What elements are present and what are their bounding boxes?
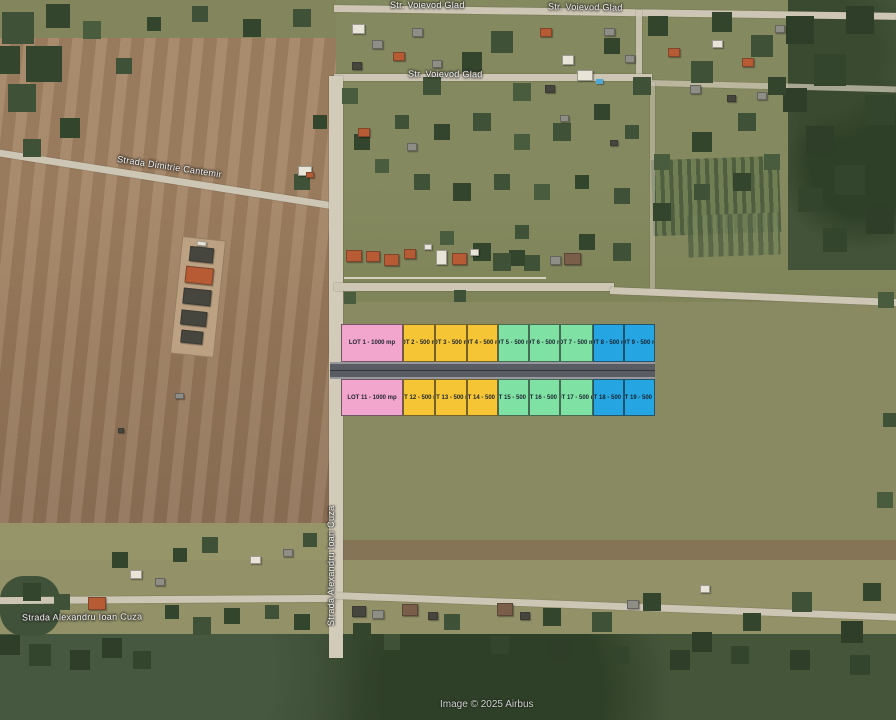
lot-9: LOT 9 - 500 mp [624,324,655,362]
lot-15: LOT 15 - 500 mp [498,379,529,416]
house [497,603,513,616]
road-middle [334,283,614,291]
farm-building [196,241,206,247]
house [540,28,552,37]
imagery-attribution: Image © 2025 Airbus [440,699,534,710]
house [352,62,362,70]
barn [182,287,212,306]
house [470,249,479,256]
house [712,40,723,48]
house [402,604,418,616]
house [562,55,574,65]
house [393,52,405,61]
lot-17: LOT 17 - 500 mp [560,379,593,416]
lot-row-2: LOT 11 - 1000 mp LOT 12 - 500 mp LOT 13 … [341,379,655,416]
house [775,25,785,33]
house [550,256,561,265]
road-voievod-glad-2 [334,74,652,81]
house [627,600,639,609]
plowed-field-left [0,38,336,525]
house [742,58,754,67]
house [520,612,530,620]
house [560,115,569,122]
house [604,28,615,36]
house [407,143,417,151]
house [424,244,432,250]
lot-1: LOT 1 - 1000 mp [341,324,403,362]
house [757,92,767,100]
house [668,48,680,57]
house [564,253,581,265]
lot-11: LOT 11 - 1000 mp [341,379,403,416]
shed [175,393,184,399]
lot-4: LOT 4 - 500 mp [467,324,498,362]
house [366,251,380,262]
lot-2: LOT 2 - 500 mp [403,324,435,362]
street-label-voievod-glad-1: Str. Voievod Glad [390,0,465,10]
house [452,253,467,265]
barn [180,309,207,327]
shed [118,428,124,433]
house [610,140,618,146]
forest-right [788,0,896,270]
lot-5: LOT 5 - 500 mp [498,324,529,362]
swimming-pool [596,79,603,84]
house [283,549,293,557]
lot-19: LOT 19 - 500 mp [624,379,655,416]
lot-8: LOT 8 - 500 mp [593,324,624,362]
house [346,250,362,262]
lot-6: LOT 6 - 500 mp [529,324,560,362]
forest-corner [0,576,60,636]
lot-18: LOT 18 - 500 mp [593,379,624,416]
barn [189,246,214,263]
red-roof-barn [184,266,214,286]
lot-7: LOT 7 - 500 mp [560,324,593,362]
house [130,570,142,579]
lot-12: LOT 12 - 500 mp [403,379,435,416]
house [412,28,423,37]
street-label-voievod-glad-2: Str. Voievod Glad [548,1,623,12]
house [384,254,399,266]
lot-13: LOT 13 - 500 mp [435,379,467,416]
lot-row-1: LOT 1 - 1000 mp LOT 2 - 500 mp LOT 3 - 5… [341,324,655,362]
satellite-map: LOT 1 - 1000 mp LOT 2 - 500 mp LOT 3 - 5… [0,0,896,720]
road-track-vertical [650,82,655,290]
house [372,40,383,49]
house [727,95,736,102]
street-label-alexandru-ioan-cuza-vertical: Strada Alexandru Ioan Cuza [326,484,336,626]
house [700,585,710,593]
house [372,610,384,619]
house [432,60,442,68]
red-roof-house [88,597,106,610]
house [352,606,366,617]
house [428,612,438,620]
street-label-alexandru-ioan-cuza-bottom: Strada Alexandru Ioan Cuza [22,611,142,622]
house [352,24,365,34]
house [690,85,701,94]
house [577,70,593,81]
street-label-voievod-glad-3: Str. Voievod Glad [408,69,483,80]
house [306,172,314,178]
house [404,249,416,259]
road-connector [636,10,642,76]
lot-14: LOT 14 - 500 mp [467,379,498,416]
barn [180,329,203,344]
lot-3: LOT 3 - 500 mp [435,324,467,362]
fence-line [344,277,546,279]
house [358,128,370,137]
lot-16: LOT 16 - 500 mp [529,379,560,416]
house [250,556,261,564]
garden-plot [687,212,780,257]
house [545,85,555,93]
house [436,250,447,265]
house [625,55,635,63]
house [155,578,165,586]
planned-road-strip [330,362,655,379]
